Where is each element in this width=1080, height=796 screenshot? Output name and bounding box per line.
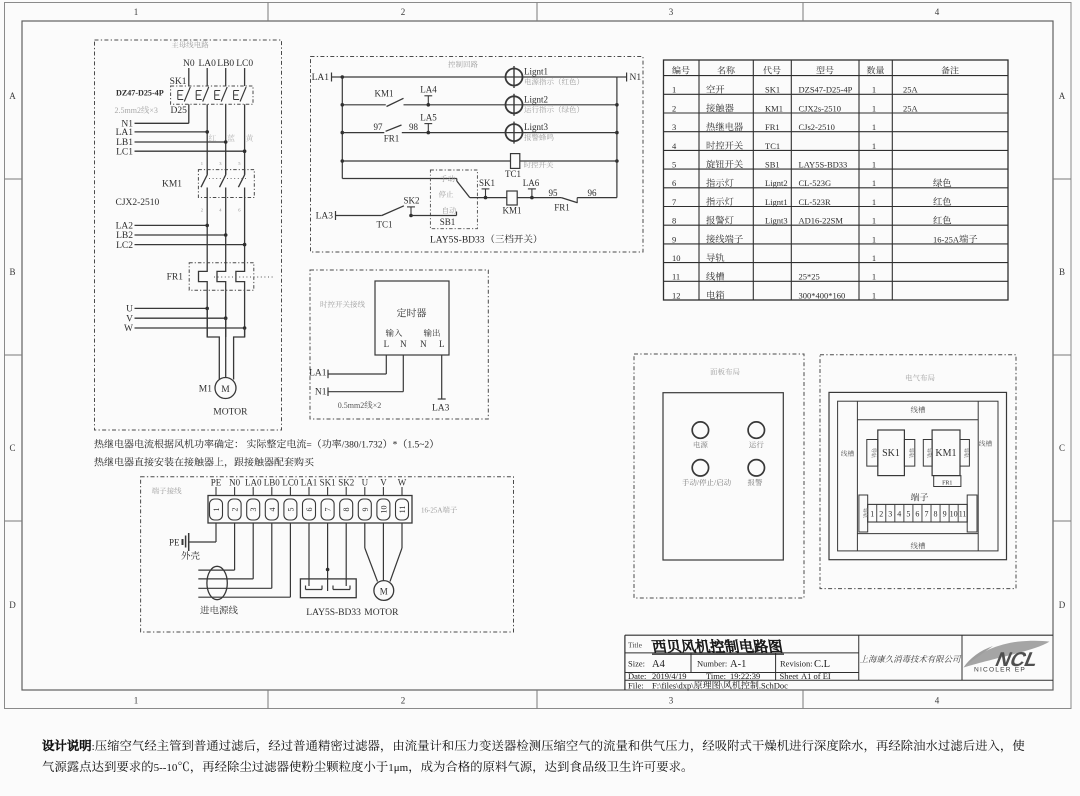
svg-text:TC1: TC1 <box>765 141 780 151</box>
svg-text:N: N <box>420 339 427 349</box>
svg-text:Number:: Number: <box>697 659 727 669</box>
svg-text:1μm: 1μm <box>388 762 408 774</box>
svg-text::: : <box>92 741 95 753</box>
svg-text:TC1: TC1 <box>377 220 393 230</box>
svg-text:11: 11 <box>672 272 680 282</box>
svg-text:M: M <box>380 587 388 597</box>
svg-text:DZS47-D25-4P: DZS47-D25-4P <box>799 85 853 95</box>
svg-text:SK2: SK2 <box>338 477 354 487</box>
svg-text:PE: PE <box>169 538 180 548</box>
svg-text:SK1: SK1 <box>765 85 780 95</box>
svg-text:L: L <box>439 339 445 349</box>
svg-text:5: 5 <box>286 508 295 512</box>
svg-text:3: 3 <box>249 508 258 512</box>
svg-text:N0: N0 <box>229 477 240 487</box>
svg-text:C.L: C.L <box>814 659 830 670</box>
svg-text:D25: D25 <box>171 106 188 116</box>
svg-text:7: 7 <box>925 510 929 519</box>
svg-text:1: 1 <box>212 508 221 512</box>
svg-text:KM1: KM1 <box>503 206 522 216</box>
svg-text:1: 1 <box>872 103 876 113</box>
svg-text:LAY5S-BD33: LAY5S-BD33 <box>306 608 361 618</box>
svg-text:N: N <box>400 339 407 349</box>
svg-text:CJX2s-2510: CJX2s-2510 <box>799 103 842 113</box>
svg-text:LA3: LA3 <box>432 403 450 413</box>
svg-text:Revision:: Revision: <box>780 659 813 669</box>
svg-text:LC1: LC1 <box>116 147 133 157</box>
svg-text:CJX2-2510: CJX2-2510 <box>116 198 160 208</box>
svg-text:1: 1 <box>870 510 874 519</box>
svg-text:KM1: KM1 <box>162 180 182 190</box>
svg-text:×2: ×2 <box>373 401 382 410</box>
svg-text:1: 1 <box>134 696 139 706</box>
svg-text:MOTOR: MOTOR <box>213 408 248 418</box>
svg-text:25*25: 25*25 <box>799 272 820 282</box>
svg-text:2: 2 <box>672 103 676 113</box>
svg-text:Lignt1: Lignt1 <box>524 67 548 77</box>
svg-text:2: 2 <box>879 510 883 519</box>
svg-text:11: 11 <box>959 510 967 519</box>
svg-text:2: 2 <box>401 7 406 17</box>
svg-text:M: M <box>221 385 230 395</box>
svg-text:LAY5S-BD33: LAY5S-BD33 <box>430 235 485 245</box>
svg-text:LA1: LA1 <box>309 368 327 378</box>
svg-text:1: 1 <box>134 7 139 17</box>
svg-text:CJs2-2510: CJs2-2510 <box>799 122 835 132</box>
svg-text:6: 6 <box>672 178 676 188</box>
svg-text:A1 of EI: A1 of EI <box>801 671 831 681</box>
svg-text:1: 1 <box>872 160 876 170</box>
svg-text:LA1: LA1 <box>312 73 330 83</box>
svg-text:FR1: FR1 <box>942 480 952 486</box>
svg-text:B: B <box>10 267 16 277</box>
svg-text:W: W <box>124 324 133 334</box>
svg-text:1: 1 <box>872 290 876 300</box>
svg-text:12: 12 <box>672 290 681 300</box>
svg-text:LA0: LA0 <box>245 477 262 487</box>
svg-text:M1: M1 <box>199 385 212 395</box>
svg-text:F:\files\dxp\: F:\files\dxp\ <box>652 680 694 690</box>
svg-text:FR1: FR1 <box>554 203 570 213</box>
svg-text:L: L <box>384 339 390 349</box>
svg-text:19:22:39: 19:22:39 <box>730 671 760 681</box>
svg-text:1: 1 <box>872 178 876 188</box>
svg-text:N1: N1 <box>630 73 642 83</box>
svg-text:导轨: 导轨 <box>861 508 868 518</box>
svg-text:导轨: 导轨 <box>870 448 877 458</box>
svg-text:LA1: LA1 <box>116 128 134 138</box>
svg-text:FR1: FR1 <box>384 133 400 143</box>
svg-text:3: 3 <box>669 7 674 17</box>
svg-text:B: B <box>1059 267 1065 277</box>
svg-text:PE: PE <box>211 477 222 487</box>
svg-text:1: 1 <box>872 197 876 207</box>
svg-text:5: 5 <box>906 510 910 519</box>
svg-text:*: * <box>393 441 398 451</box>
svg-text:SB1: SB1 <box>765 160 780 170</box>
svg-text:KM1: KM1 <box>935 448 956 459</box>
svg-text:N1: N1 <box>315 388 327 398</box>
svg-text:V: V <box>380 477 387 487</box>
svg-text:CL-523G: CL-523G <box>799 178 832 188</box>
svg-text:File:: File: <box>628 680 644 690</box>
svg-text:LA3: LA3 <box>316 212 334 222</box>
svg-text:10: 10 <box>950 510 958 519</box>
svg-text:1: 1 <box>201 161 203 166</box>
svg-text:LA0: LA0 <box>199 59 217 69</box>
svg-text:Lignt3: Lignt3 <box>765 216 788 226</box>
svg-text:.SchDoc: .SchDoc <box>759 680 788 690</box>
svg-text:Time:: Time: <box>706 671 726 681</box>
svg-text:95: 95 <box>549 188 559 198</box>
svg-text:导轨: 导轨 <box>926 448 933 458</box>
svg-text:0.5mm2: 0.5mm2 <box>338 401 364 410</box>
svg-text:16-25A: 16-25A <box>421 507 442 515</box>
svg-text:TC1: TC1 <box>505 169 521 179</box>
svg-text:U: U <box>126 305 133 315</box>
svg-text:Lignt1: Lignt1 <box>765 197 788 207</box>
svg-text:LB2: LB2 <box>116 231 133 241</box>
svg-text:1: 1 <box>872 272 876 282</box>
svg-text:3: 3 <box>669 696 674 706</box>
svg-text:7: 7 <box>324 508 333 512</box>
svg-text:4: 4 <box>268 508 277 512</box>
svg-text:SK2: SK2 <box>404 195 420 205</box>
svg-text:CL-523R: CL-523R <box>799 197 831 207</box>
svg-text:D: D <box>1059 600 1066 610</box>
svg-text:KM1: KM1 <box>375 89 394 99</box>
svg-text:1.5~2: 1.5~2 <box>407 441 429 451</box>
svg-text:8: 8 <box>342 508 351 512</box>
svg-text:A: A <box>1059 91 1066 101</box>
svg-text:Lignt3: Lignt3 <box>524 122 548 132</box>
svg-text:=: = <box>306 441 311 451</box>
svg-text:导轨: 导轨 <box>963 448 970 458</box>
svg-text:SK1: SK1 <box>320 477 336 487</box>
svg-text:1: 1 <box>872 85 876 95</box>
svg-text:LC2: LC2 <box>116 241 133 251</box>
svg-text:V: V <box>126 314 133 324</box>
svg-text:10: 10 <box>672 253 681 263</box>
svg-text:6: 6 <box>915 510 919 519</box>
svg-text:N0: N0 <box>183 59 195 69</box>
svg-text:KM1: KM1 <box>765 103 783 113</box>
svg-text:W: W <box>398 477 407 487</box>
svg-text:LC0: LC0 <box>236 59 253 69</box>
svg-text:SK1: SK1 <box>479 178 495 188</box>
svg-text:96: 96 <box>588 188 598 198</box>
svg-text:8: 8 <box>934 510 938 519</box>
svg-text:98: 98 <box>409 122 419 132</box>
svg-text:1: 1 <box>872 234 876 244</box>
svg-text:×3: ×3 <box>149 106 158 115</box>
svg-text:LC0: LC0 <box>282 477 299 487</box>
svg-text:LA5: LA5 <box>420 112 437 122</box>
svg-text:300*400*160: 300*400*160 <box>799 290 846 300</box>
svg-text:D: D <box>9 600 16 610</box>
svg-text:4: 4 <box>935 7 940 17</box>
svg-text:Lignt2: Lignt2 <box>765 178 788 188</box>
svg-text:1: 1 <box>872 141 876 151</box>
svg-text:10: 10 <box>379 506 388 514</box>
svg-text:8: 8 <box>672 216 676 226</box>
svg-text:LB0: LB0 <box>264 477 281 487</box>
svg-text:LA6: LA6 <box>523 178 540 188</box>
svg-text:9: 9 <box>943 510 947 519</box>
svg-text:DZ47-D25-4P: DZ47-D25-4P <box>116 89 164 98</box>
svg-text:NICOLER EP: NICOLER EP <box>974 667 1026 674</box>
svg-text:6: 6 <box>305 508 314 512</box>
svg-text:FR1: FR1 <box>765 122 780 132</box>
svg-text:LAY5S-BD33: LAY5S-BD33 <box>799 160 848 170</box>
svg-text:16-25A: 16-25A <box>933 234 960 244</box>
svg-text:2.5mm2: 2.5mm2 <box>115 106 141 115</box>
svg-text:LB0: LB0 <box>217 59 234 69</box>
svg-text:5: 5 <box>672 160 676 170</box>
svg-text:C: C <box>1059 443 1065 453</box>
svg-text:C: C <box>10 443 16 453</box>
svg-text:FR1: FR1 <box>167 273 184 283</box>
svg-text:9: 9 <box>361 508 370 512</box>
svg-text:导轨: 导轨 <box>908 448 915 458</box>
svg-text:Size:: Size: <box>628 659 645 669</box>
svg-text:4: 4 <box>935 696 940 706</box>
svg-text:A-1: A-1 <box>730 659 746 670</box>
svg-text:97: 97 <box>374 122 384 132</box>
svg-text:1: 1 <box>672 85 676 95</box>
svg-text:9: 9 <box>672 234 676 244</box>
svg-text:25A: 25A <box>903 85 919 95</box>
svg-text:4: 4 <box>897 510 901 519</box>
svg-text:3: 3 <box>672 122 676 132</box>
svg-text:MOTOR: MOTOR <box>364 608 399 618</box>
svg-text:U: U <box>362 477 369 487</box>
svg-text:2: 2 <box>401 696 406 706</box>
svg-text:SB1: SB1 <box>440 217 456 227</box>
svg-text:LA4: LA4 <box>420 85 437 95</box>
svg-text:LA2: LA2 <box>116 222 134 232</box>
svg-text:2: 2 <box>201 208 203 213</box>
svg-text:/380/1.732: /380/1.732 <box>342 441 383 451</box>
svg-text:11: 11 <box>398 506 407 514</box>
svg-text:1: 1 <box>872 216 876 226</box>
svg-text:5--10: 5--10 <box>154 762 178 774</box>
svg-text:A4: A4 <box>652 659 666 670</box>
svg-text:2: 2 <box>231 508 240 512</box>
svg-text:1: 1 <box>872 253 876 263</box>
svg-text:Lignt2: Lignt2 <box>524 94 548 104</box>
svg-text:Title: Title <box>628 641 643 650</box>
svg-text:AD16-22SM: AD16-22SM <box>799 216 844 226</box>
svg-text:7: 7 <box>672 197 676 207</box>
svg-text:25A: 25A <box>903 103 919 113</box>
svg-text:SK1: SK1 <box>882 448 900 459</box>
svg-text:LA1: LA1 <box>301 477 318 487</box>
svg-text:A: A <box>9 91 16 101</box>
svg-text:3: 3 <box>888 510 892 519</box>
svg-text:1: 1 <box>872 122 876 132</box>
